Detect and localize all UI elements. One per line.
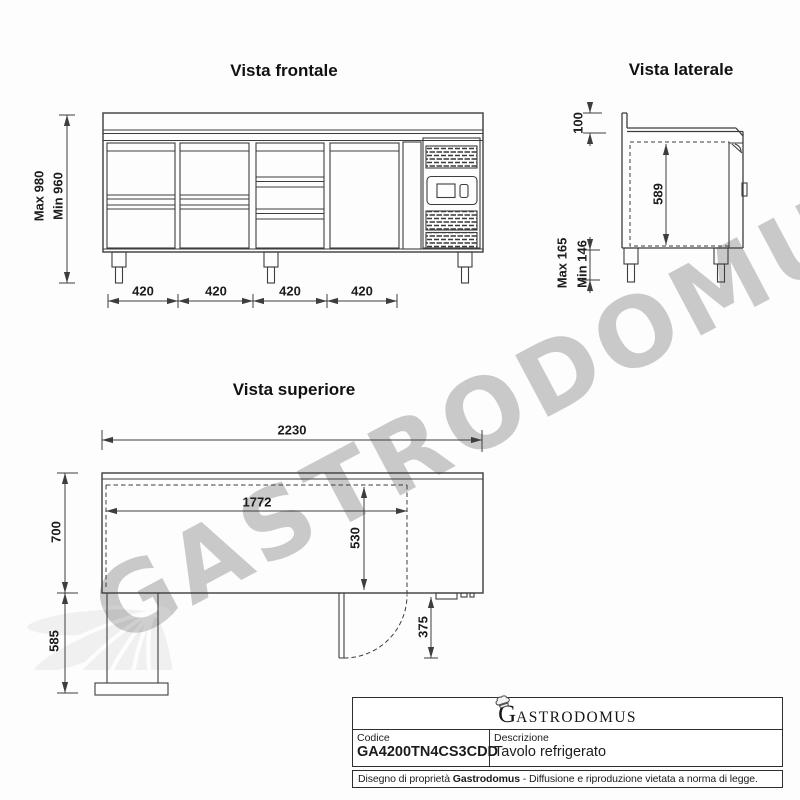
front-door-section	[330, 143, 399, 248]
description-value: Tavolo refrigerato	[494, 744, 778, 760]
top-dim-total-width: 2230	[278, 423, 307, 438]
top-dim-door-swing: 375	[416, 616, 431, 638]
front-drawer-section-3	[256, 143, 324, 248]
front-dim-section-4: 420	[351, 284, 373, 299]
top-open-drawer	[95, 593, 168, 695]
front-legs	[112, 252, 472, 283]
side-dim-leg-min: Min 146	[575, 240, 590, 288]
chef-hat-icon	[494, 694, 512, 710]
description-label: Descrizione	[494, 732, 778, 744]
control-switch	[460, 185, 468, 198]
code-label: Codice	[357, 732, 485, 744]
front-dim-height-max: Max 980	[32, 171, 47, 222]
top-plan-outline	[102, 473, 483, 593]
ventilation-grille-middle	[426, 211, 477, 230]
door-swing-arc	[344, 595, 407, 658]
front-dim-section-3: 420	[279, 284, 301, 299]
front-dimension-lines	[59, 115, 397, 308]
title-block-fields-row: Codice GA4200TN4CS3CDD Descrizione Tavol…	[353, 730, 782, 766]
side-dim-interior-height: 589	[651, 183, 666, 205]
front-drawer-section-2	[180, 143, 249, 248]
side-interior-dashed	[630, 142, 729, 246]
top-dim-inner-width: 1772	[243, 495, 272, 510]
description-cell: Descrizione Tavolo refrigerato	[490, 730, 782, 766]
code-value: GA4200TN4CS3CDD	[357, 744, 485, 760]
top-open-door	[339, 593, 407, 658]
side-view-title: Vista laterale	[629, 60, 734, 80]
logo-rest: ASTRODOMUS	[516, 709, 637, 727]
top-view-title: Vista superiore	[233, 380, 356, 400]
title-block-footer: Disegno di proprietà Gastrodomus - Diffu…	[352, 770, 783, 788]
top-dim-drawer-extension: 585	[47, 630, 62, 652]
drawing-linework	[0, 0, 800, 800]
control-panel	[427, 177, 477, 205]
footer-brand: Gastrodomus	[453, 773, 520, 785]
ventilation-grille-top	[426, 146, 477, 168]
ventilation-grille-bottom	[426, 233, 477, 249]
footer-prefix: Disegno di proprietà	[358, 773, 453, 785]
footer-suffix: - Diffusione e riproduzione vietata a no…	[520, 773, 758, 785]
front-dim-section-1: 420	[132, 284, 154, 299]
side-dim-backsplash: 100	[571, 112, 586, 134]
top-front-edge-fittings	[436, 593, 474, 599]
front-dim-section-2: 420	[205, 284, 227, 299]
top-dim-inner-depth: 530	[348, 527, 363, 549]
gastrodomus-logo: GASTRODOMUS	[498, 705, 637, 727]
code-cell: Codice GA4200TN4CS3CDD	[353, 730, 490, 766]
front-view-title: Vista frontale	[230, 61, 337, 81]
title-block-logo-row: GASTRODOMUS	[353, 698, 782, 730]
side-legs	[624, 248, 728, 282]
title-block: GASTRODOMUS Codice GA4200TN4CS3CDD Descr…	[352, 697, 783, 767]
front-drawer-section-1	[107, 143, 175, 248]
side-dim-leg-max: Max 165	[555, 238, 570, 289]
control-display	[437, 184, 455, 198]
front-filler-strip	[403, 142, 421, 249]
front-compressor-unit	[423, 138, 480, 248]
top-view-linework	[57, 430, 483, 695]
front-dim-height-min: Min 960	[51, 172, 66, 220]
front-view-linework	[59, 113, 483, 308]
top-dimension-lines	[57, 430, 482, 693]
technical-drawing-page: GASTRODOMUS	[0, 0, 800, 800]
top-dim-depth: 700	[49, 521, 64, 543]
side-body-outline	[622, 113, 747, 248]
